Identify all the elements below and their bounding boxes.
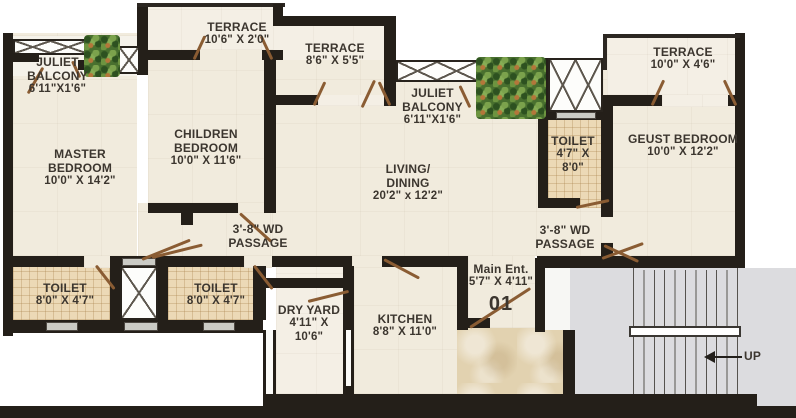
stair-landing	[629, 326, 741, 337]
room-dims: 10'0" X 11'6"	[151, 155, 261, 169]
room-label-master-bedroom: MASTER BEDROOM 10'0" X 14'2"	[25, 147, 135, 189]
passage-label-left: 3'-8" WD PASSAGE	[220, 222, 296, 250]
passage-name: 3'-8" WD PASSAGE	[220, 222, 296, 250]
room-dims: 6'11"X1'6"	[386, 114, 479, 128]
terrace-parapet	[603, 34, 740, 38]
juliet-balcony-mid-window	[396, 60, 478, 82]
wall	[537, 256, 745, 268]
room-dims: 8'6" X 5'5"	[275, 55, 395, 69]
room-name: TERRACE	[275, 41, 395, 55]
stair-lobby-strip	[545, 268, 570, 330]
wall	[264, 50, 276, 213]
entrance-foyer-floor	[457, 328, 563, 394]
wall-bottom	[263, 394, 757, 406]
room-label-juliet-balcony-mid: JULIET BALCONY 6'11"X1'6"	[386, 86, 479, 128]
room-name: JULIET BALCONY	[10, 55, 105, 83]
wall	[181, 213, 193, 225]
room-name: LIVING/ DINING	[368, 162, 448, 190]
passage-label-right: 3'-8" WD PASSAGE	[527, 223, 603, 251]
room-name: JULIET BALCONY	[386, 86, 479, 114]
room-label-juliet-balcony-left: JULIET BALCONY 6'11"X1'6"	[10, 55, 105, 97]
room-label-terrace-mid: TERRACE 8'6" X 5'5"	[275, 41, 395, 69]
passage-name: 3'-8" WD PASSAGE	[527, 223, 603, 251]
room-dims: 8'8" X 11'0"	[345, 326, 465, 340]
duct-shaft	[120, 266, 158, 320]
room-dims: 8'0" X 4'7"	[15, 295, 115, 309]
door-opening	[318, 95, 384, 106]
room-label-terrace-right: TERRACE 10'0" X 4'6"	[623, 45, 743, 73]
room-name: MASTER BEDROOM	[25, 147, 135, 175]
toilet-window	[46, 322, 78, 331]
room-name: TERRACE	[175, 20, 299, 34]
room-label-guest-bedroom: GEUST BEDROOM 10'0" X 12'2"	[628, 132, 738, 160]
up-arrow-head	[704, 351, 715, 363]
wall	[3, 256, 84, 267]
room-name: Main Ent.	[460, 262, 542, 276]
wall	[273, 95, 318, 105]
room-label-main-entrance: Main Ent. 5'7" X 4'11" 01	[460, 262, 542, 316]
room-name: TERRACE	[623, 45, 743, 59]
terrace-parapet	[137, 3, 285, 7]
stair-treads-upper	[633, 270, 739, 328]
toilet-window	[203, 322, 235, 331]
stair-direction-label: UP	[744, 349, 774, 363]
room-name: DRY YARD	[276, 303, 342, 317]
room-dims: 4'11" X 10'6"	[289, 317, 329, 344]
door-opening	[238, 203, 265, 213]
room-label-toilet-right: TOILET 8'0" X 4'7"	[166, 281, 266, 309]
door-opening	[662, 95, 728, 107]
room-name: KITCHEN	[345, 312, 465, 326]
planter-box	[476, 57, 546, 119]
room-label-toilet-mid: TOILET 4'7" X 8'0"	[544, 134, 602, 175]
shaft-window	[124, 322, 158, 331]
room-dims: 6'11"X1'6"	[10, 83, 105, 97]
terrace-parapet	[603, 34, 607, 70]
room-label-toilet-left: TOILET 8'0" X 4'7"	[15, 281, 115, 309]
unit-number: 01	[460, 293, 542, 317]
room-dims: 4'7" X 8'0"	[556, 148, 590, 175]
room-label-kitchen: KITCHEN 8'8" X 11'0"	[345, 312, 465, 340]
room-label-children-bedroom: CHILDREN BEDROOM 10'0" X 11'6"	[151, 127, 261, 169]
room-dims: 5'7" X 4'11"	[460, 276, 542, 290]
room-name: GEUST BEDROOM	[628, 132, 738, 146]
up-label: UP	[744, 349, 774, 363]
wall	[538, 198, 580, 208]
room-name: TOILET	[166, 281, 266, 295]
up-arrow	[714, 356, 742, 358]
wall	[148, 203, 238, 213]
room-dims: 10'0" X 12'2"	[628, 146, 738, 160]
stair-treads-lower	[633, 336, 739, 394]
room-dims: 10'0" X 14'2"	[25, 175, 135, 189]
room-dims: 20'2" x 12'2"	[368, 190, 448, 204]
duct-shaft	[548, 58, 603, 112]
duct-shaft	[118, 46, 140, 74]
wall	[272, 256, 352, 267]
room-name: CHILDREN BEDROOM	[151, 127, 261, 155]
room-name: TOILET	[15, 281, 115, 295]
floor-plan: JULIET BALCONY 6'11"X1'6" TERRACE 10'6" …	[0, 0, 796, 418]
room-label-dry-yard: DRY YARD 4'11" X 10'6"	[276, 303, 342, 344]
room-label-living-dining: LIVING/ DINING 20'2" x 12'2"	[368, 162, 448, 204]
room-dims: 8'0" X 4'7"	[166, 295, 266, 309]
shaft-window	[556, 112, 596, 119]
shaft-window	[122, 258, 156, 266]
wall	[563, 330, 575, 396]
room-name: TOILET	[544, 134, 602, 148]
dry-yard-window-wall	[263, 330, 276, 394]
ground-line	[0, 406, 796, 418]
door-opening	[352, 256, 382, 268]
room-dims: 10'0" X 4'6"	[623, 59, 743, 73]
wall	[263, 278, 347, 288]
